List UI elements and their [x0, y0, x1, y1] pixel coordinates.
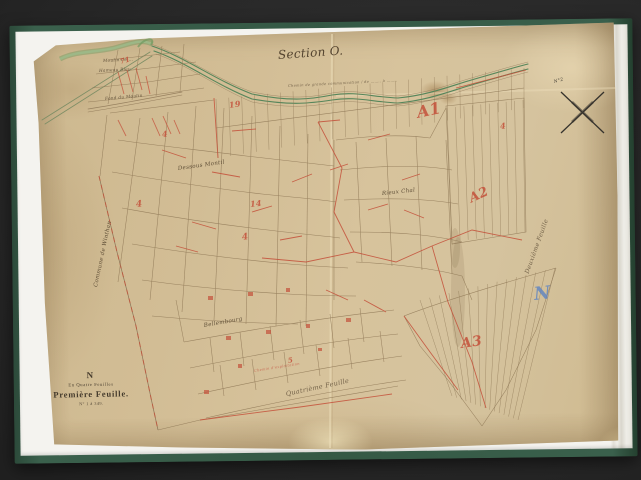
- scan-viewer: Section O.Chemin de grande communication…: [0, 0, 641, 480]
- red-buildings: [204, 288, 351, 394]
- plate-title: Première Feuille.: [40, 388, 142, 400]
- compass-icon: [561, 92, 604, 133]
- plate-series: En Quatre Feuilles: [40, 381, 142, 388]
- plate-caption: N En Quatre Feuilles Première Feuille. N…: [40, 369, 143, 407]
- parcel-strip-lines: [216, 68, 555, 420]
- plate-letter: N: [40, 369, 142, 381]
- map-linework: [0, 0, 641, 480]
- main-road: [42, 44, 528, 124]
